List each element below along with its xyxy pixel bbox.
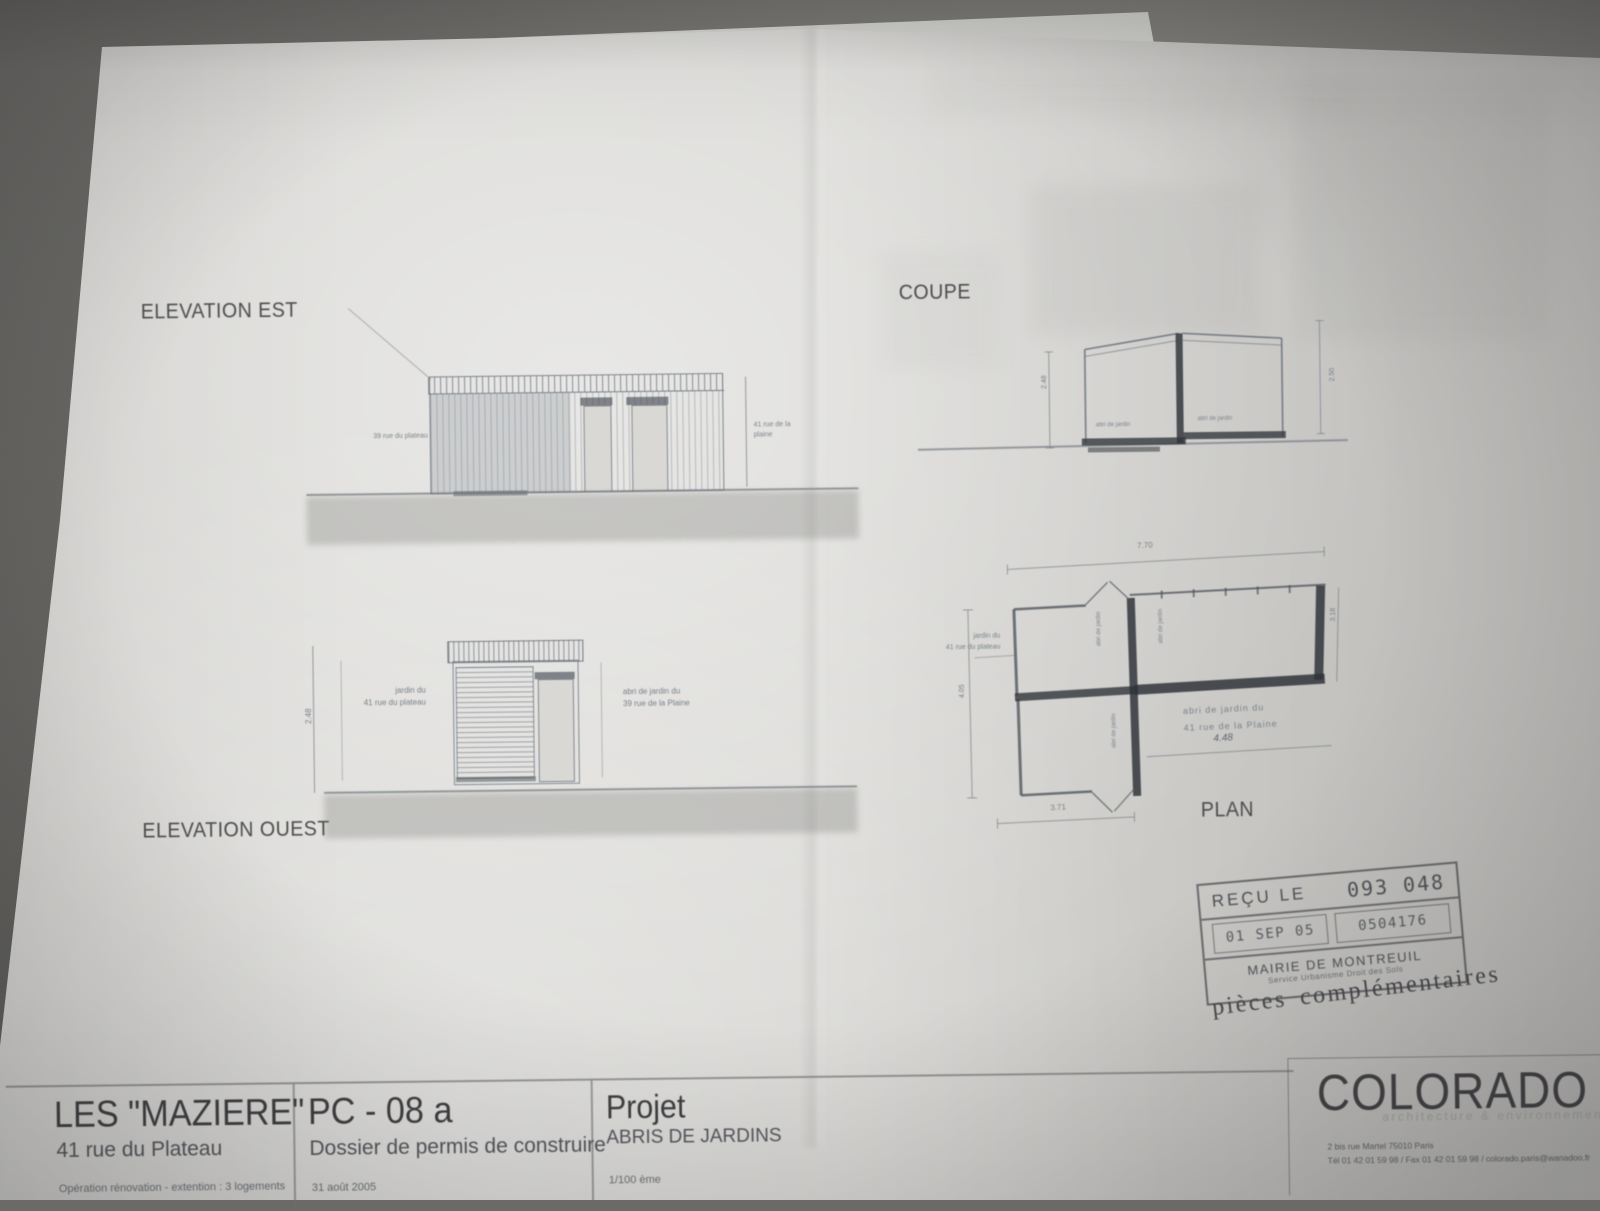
plan-room-label: abri de jardin [1111, 713, 1117, 748]
plan-dim-right: 3.18 [1330, 608, 1337, 622]
titleblock-rule [6, 1070, 1294, 1088]
stamp-number: 093 048 [1346, 869, 1446, 901]
plan-dim-left: 4.05 [959, 684, 966, 698]
doc-date: 31 août 2005 [312, 1181, 376, 1194]
section-title: ABRIS DE JARDINS [606, 1125, 782, 1149]
sheet-content: ELEVATION EST 39 rue du plateau 41 rue d… [0, 0, 1600, 1210]
leader-line [336, 299, 437, 385]
stamp-code: 0504176 [1334, 903, 1451, 943]
firm-block: COLORADO architecture & environnement 2 … [1287, 1054, 1600, 1195]
project-operation: Opération rénovation - extention : 3 log… [59, 1180, 285, 1195]
note-line: jardin du [928, 632, 1000, 643]
plan-dim-top: 7.70 [1137, 540, 1153, 550]
est-left-note: 39 rue du plateau [358, 433, 428, 441]
est-right-note: 41 rue de la plaine [754, 420, 802, 440]
door [538, 679, 575, 782]
coupe-label: COUPE [899, 280, 971, 305]
ouest-right-note: abri de jardin du 39 rue de la Plaine [623, 685, 690, 710]
firm-address: 2 bis rue Martel 75010 Paris Tél 01 42 0… [1327, 1137, 1590, 1167]
plinth [456, 776, 536, 782]
door [631, 405, 668, 492]
note-line: 41 rue du plateau [928, 642, 1000, 653]
project-name: LES "MAZIERE" [54, 1090, 305, 1136]
stamp-date: 01 SEP 05 [1212, 914, 1329, 954]
coupe-room-left-label: abri de jardin [1096, 422, 1131, 428]
project-address: 41 rue du Plateau [56, 1137, 222, 1163]
ground-band [306, 490, 859, 545]
stamp-recu-le: REÇU LE [1211, 883, 1307, 911]
louver-panel [456, 666, 535, 779]
elevation-ouest-label: ELEVATION OUEST [142, 817, 330, 843]
coupe-dim-right: 2.50 [1329, 368, 1336, 382]
plan-center-note: abri de jardin du 41 rue de la Plaine [1182, 699, 1278, 738]
note-line: 41 rue du plateau [336, 697, 426, 710]
note-line: abri de jardin du [623, 685, 690, 698]
plan-room-label: abri de jardin [1096, 612, 1102, 647]
coupe-dim-left: 2.48 [1041, 375, 1048, 389]
plan-drawing [939, 535, 1413, 841]
elevation-est-drawing [429, 373, 724, 495]
photo-of-architectural-drawing: ELEVATION EST 39 rue du plateau 41 rue d… [0, 0, 1600, 1200]
plan-left-note: jardin du 41 rue du plateau [928, 632, 1000, 654]
plan-dim-bottom-left: 3.71 [1050, 802, 1066, 812]
ouest-left-note: jardin du 41 rue du plateau [336, 685, 426, 710]
door [583, 405, 612, 492]
plan-room-label: abri de jardin [1158, 609, 1164, 644]
section-label: Projet [606, 1087, 686, 1126]
ouest-dim: 2.48 [304, 708, 313, 724]
note-line: 39 rue de la Plaine [623, 697, 690, 710]
coupe-room-right-label: abri de jardin [1198, 416, 1233, 422]
ground-band [324, 788, 857, 839]
shaded-wall [430, 392, 571, 494]
dimension-line [340, 661, 342, 781]
dimension-line [745, 377, 747, 487]
firm-contact-line: Tél 01 42 01 59 98 / Fax 01 42 01 59 98 … [1328, 1151, 1591, 1168]
note-line: jardin du [336, 685, 426, 698]
elevation-ouest-drawing [452, 640, 578, 787]
firm-tagline: architecture & environnement [1329, 1107, 1600, 1124]
drawing-scale: 1/100 ème [609, 1174, 661, 1187]
dimension-line [601, 662, 603, 777]
doc-type: Dossier de permis de construire [309, 1133, 606, 1161]
coupe-drawing [1036, 318, 1358, 467]
elevation-est-label: ELEVATION EST [141, 299, 298, 325]
doc-ref: PC - 08 a [308, 1088, 453, 1133]
